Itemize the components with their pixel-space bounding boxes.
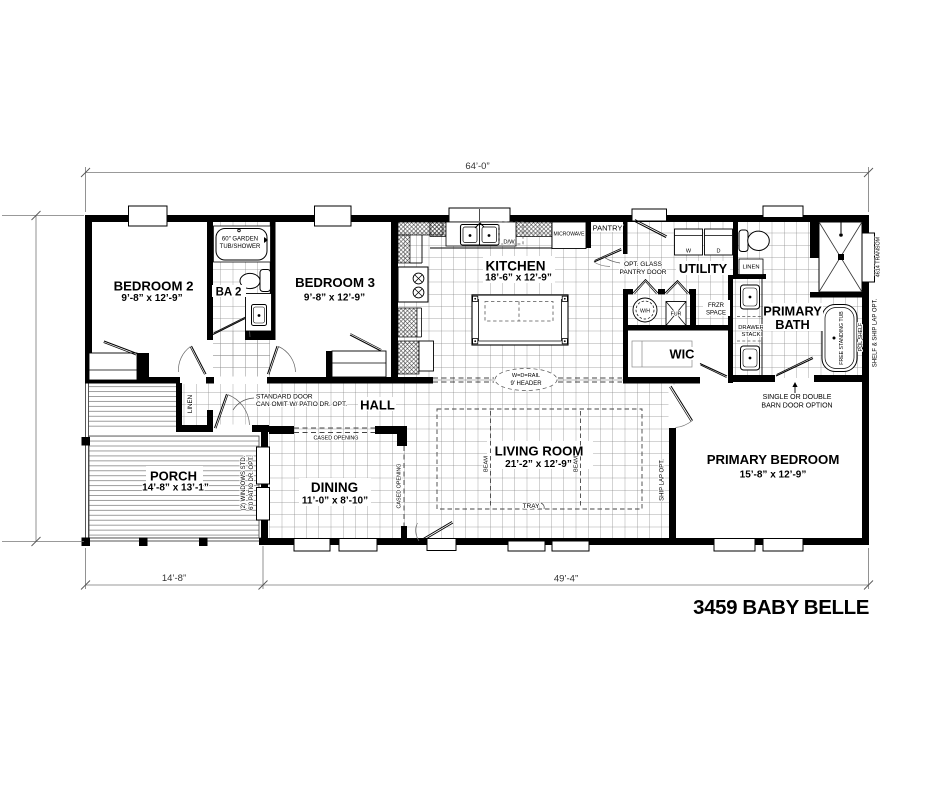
svg-text:TRAY: TRAY xyxy=(523,503,541,510)
svg-text:DRAWER: DRAWER xyxy=(738,325,764,331)
svg-text:FRZR: FRZR xyxy=(708,303,725,309)
svg-text:KITCHEN: KITCHEN xyxy=(486,259,546,274)
svg-text:14’-8” x 13’-1”: 14’-8” x 13’-1” xyxy=(142,483,209,494)
svg-text:BEAM: BEAM xyxy=(484,456,490,472)
svg-text:CASED OPENING: CASED OPENING xyxy=(314,436,359,442)
svg-text:14’-8”: 14’-8” xyxy=(162,573,186,584)
svg-text:POL SHELF: POL SHELF xyxy=(858,323,864,351)
svg-text:21’-2” x 12’-9”: 21’-2” x 12’-9” xyxy=(505,459,572,470)
svg-text:FREE STANDING TUB: FREE STANDING TUB xyxy=(839,311,845,365)
svg-text:6’0 PATIO DR. OPT.: 6’0 PATIO DR. OPT. xyxy=(249,456,255,510)
svg-text:BARN DOOR OPTION: BARN DOOR OPTION xyxy=(761,403,832,410)
svg-text:LINEN: LINEN xyxy=(187,395,194,413)
svg-text:BATH: BATH xyxy=(775,317,810,332)
svg-text:MICROWAVE: MICROWAVE xyxy=(554,232,585,238)
svg-text:PORCH: PORCH xyxy=(150,469,197,484)
svg-text:49’-4”: 49’-4” xyxy=(554,574,578,585)
svg-text:PRIMARY BEDROOM: PRIMARY BEDROOM xyxy=(707,452,840,467)
svg-text:OPT. GLASS: OPT. GLASS xyxy=(624,261,663,268)
svg-text:BEDROOM 2: BEDROOM 2 xyxy=(114,279,194,294)
svg-text:CASED OPENING: CASED OPENING xyxy=(397,464,403,509)
svg-text:(2) WINDOWS STD.: (2) WINDOWS STD. xyxy=(241,455,247,510)
svg-text:W: W xyxy=(686,249,692,255)
svg-text:SPACE: SPACE xyxy=(706,311,726,317)
svg-text:W/H: W/H xyxy=(640,309,650,315)
svg-text:UTILITY: UTILITY xyxy=(679,261,728,276)
svg-text:60″ GARDEN: 60″ GARDEN xyxy=(222,237,258,243)
svg-text:TUB/SHOWER: TUB/SHOWER xyxy=(220,244,261,250)
svg-text:SINGLE OR DOUBLE: SINGLE OR DOUBLE xyxy=(763,394,832,401)
svg-text:STANDARD DOOR: STANDARD DOOR xyxy=(256,394,313,401)
svg-text:SHIP LAP OPT.: SHIP LAP OPT. xyxy=(660,459,666,501)
svg-text:WIC: WIC xyxy=(670,347,695,362)
svg-text:9’-8” x 12’-9”: 9’-8” x 12’-9” xyxy=(121,293,182,304)
svg-text:9’ HEADER: 9’ HEADER xyxy=(510,381,542,387)
svg-text:9’-8” x 12’-9”: 9’-8” x 12’-9” xyxy=(304,293,365,304)
svg-text:BA 2: BA 2 xyxy=(216,287,242,299)
svg-text:W=D=RAIL: W=D=RAIL xyxy=(512,373,540,379)
svg-text:PANTRY DOOR: PANTRY DOOR xyxy=(620,269,667,276)
svg-text:FUR: FUR xyxy=(671,312,682,318)
svg-text:PANTRY: PANTRY xyxy=(593,224,623,233)
svg-text:18’-6” x 12’-9”: 18’-6” x 12’-9” xyxy=(485,273,552,284)
svg-text:LIVING ROOM: LIVING ROOM xyxy=(495,444,584,459)
svg-text:BEDROOM 3: BEDROOM 3 xyxy=(295,275,375,290)
svg-text:SHELF & SHIP LAP OPT.: SHELF & SHIP LAP OPT. xyxy=(873,298,879,367)
svg-text:DINING: DINING xyxy=(311,480,358,495)
svg-text:CAN OMIT W/ PATIO DR. OPT.: CAN OMIT W/ PATIO DR. OPT. xyxy=(256,401,347,408)
svg-text:HALL: HALL xyxy=(360,398,395,413)
svg-text:4614 TRANSOM: 4614 TRANSOM xyxy=(876,236,882,277)
svg-text:11’-0” x 8’-10”: 11’-0” x 8’-10” xyxy=(302,496,368,507)
svg-text:LINEN: LINEN xyxy=(742,265,759,271)
svg-text:STACK: STACK xyxy=(742,332,761,338)
svg-text:64’-0”: 64’-0” xyxy=(465,161,489,172)
svg-text:15’-8” x 12’-9”: 15’-8” x 12’-9” xyxy=(740,470,807,481)
svg-text:D/W: D/W xyxy=(503,240,515,246)
svg-text:3459 BABY BELLE: 3459 BABY BELLE xyxy=(693,596,869,619)
svg-text:D: D xyxy=(717,249,721,255)
